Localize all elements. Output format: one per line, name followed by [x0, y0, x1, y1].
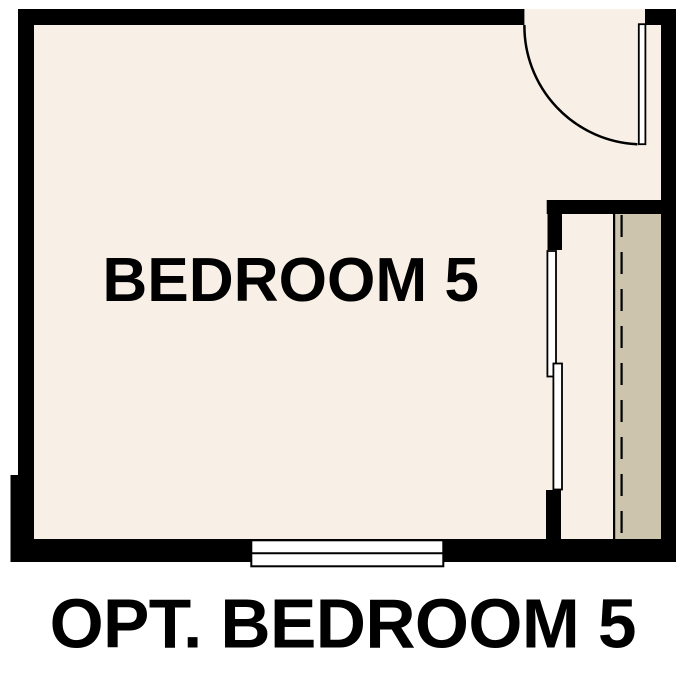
- svg-text:OPT. BEDROOM 5: OPT. BEDROOM 5: [50, 584, 636, 662]
- svg-text:BEDROOM 5: BEDROOM 5: [102, 246, 479, 315]
